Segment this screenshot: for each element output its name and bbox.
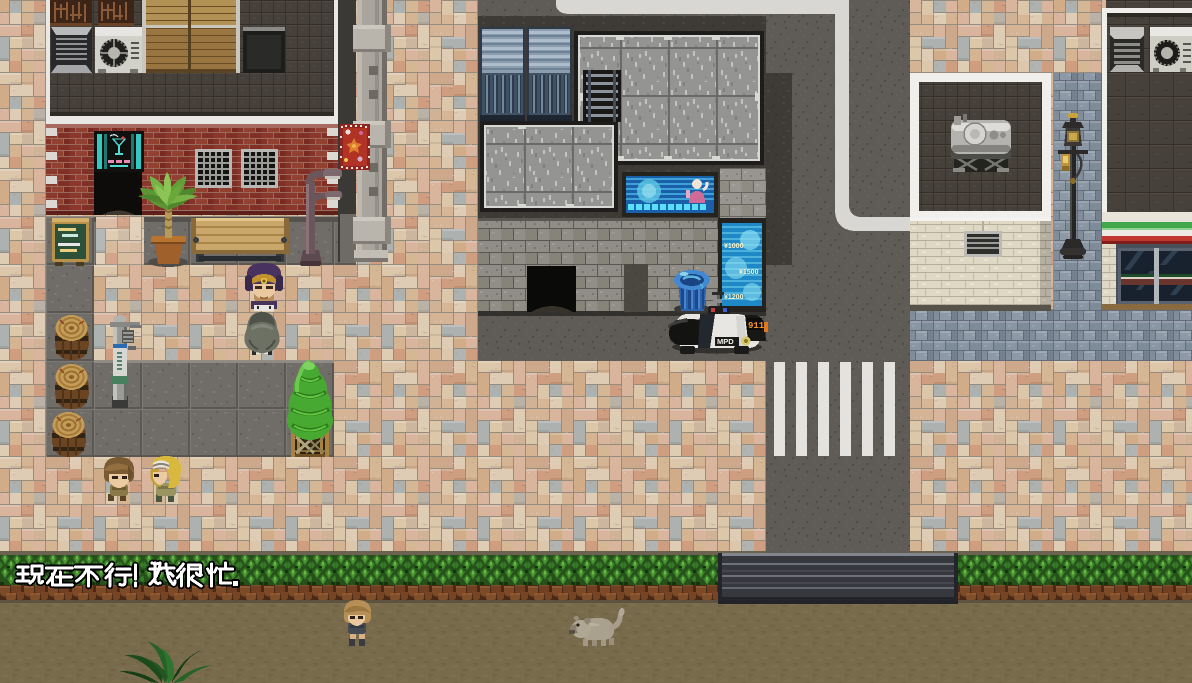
svg-text:¥1000: ¥1000 bbox=[724, 243, 744, 250]
svg-text:¥1500: ¥1500 bbox=[739, 269, 759, 276]
svg-text:MPD: MPD bbox=[717, 337, 734, 346]
svg-text:¥1200: ¥1200 bbox=[724, 294, 744, 301]
svg-text:911: 911 bbox=[748, 321, 765, 331]
